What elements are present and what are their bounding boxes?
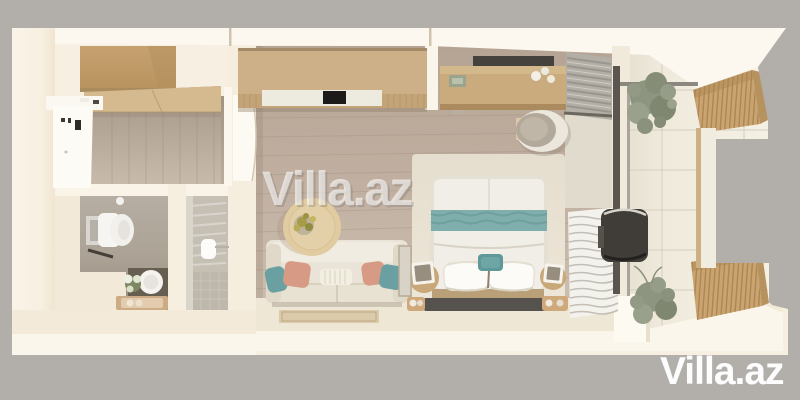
svg-text:Villa.az: Villa.az: [660, 350, 784, 393]
svg-text:Villa.az: Villa.az: [262, 163, 412, 216]
